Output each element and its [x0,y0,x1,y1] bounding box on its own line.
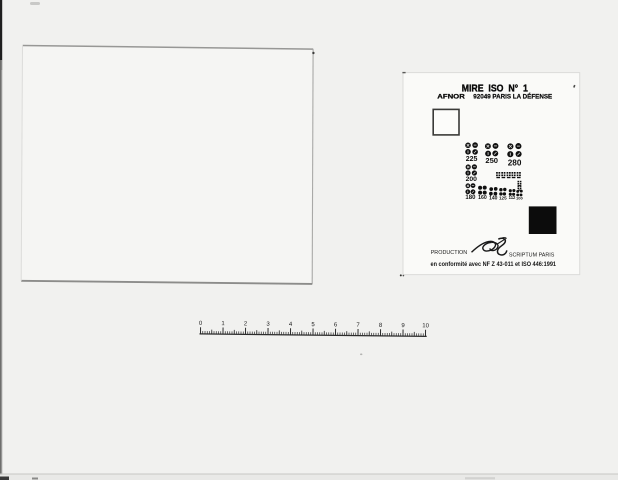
svg-text:180: 180 [465,195,476,201]
svg-text:en conformité avec NF Z 43-011: en conformité avec NF Z 43-011 et ISO 44… [431,261,557,268]
svg-text:92049 PARIS LA DÉFENSE: 92049 PARIS LA DÉFENSE [473,92,553,101]
svg-text:100: 100 [516,195,523,200]
svg-text:160: 160 [478,195,487,201]
svg-text:AFNOR: AFNOR [437,95,465,101]
svg-text:280: 280 [508,159,522,168]
svg-text:140: 140 [489,195,498,201]
svg-text:200: 200 [466,176,478,183]
svg-text:225: 225 [466,156,478,163]
svg-text:112: 112 [509,195,516,200]
svg-text:SCRIPTUM PARIS: SCRIPTUM PARIS [509,253,555,259]
svg-text:PRODUCTION: PRODUCTION [431,250,468,256]
svg-text:250: 250 [485,156,498,165]
svg-text:125: 125 [499,195,507,200]
svg-text:10: 10 [422,323,429,329]
